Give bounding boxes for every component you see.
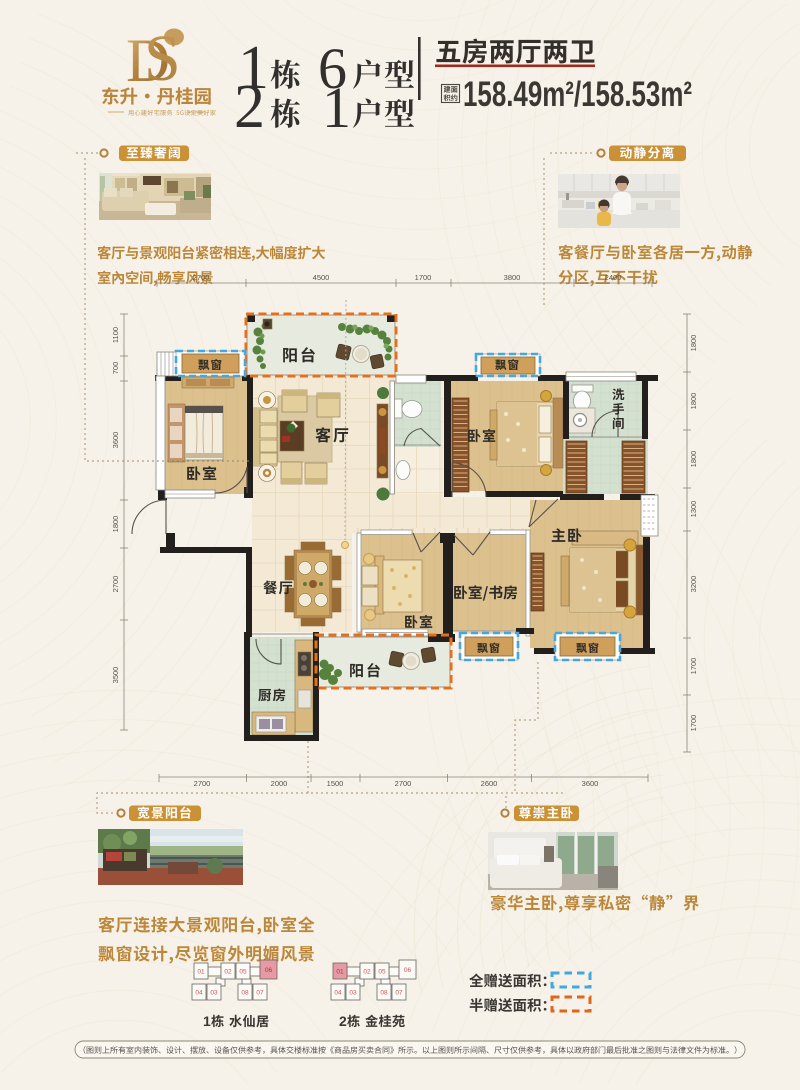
- svg-text:03: 03: [349, 989, 357, 996]
- svg-text:2000: 2000: [271, 779, 288, 788]
- svg-text:07: 07: [395, 989, 403, 996]
- svg-text:1800: 1800: [689, 451, 698, 468]
- svg-text:03: 03: [210, 989, 218, 996]
- svg-text:05: 05: [239, 968, 247, 975]
- svg-text:S: S: [144, 22, 181, 95]
- svg-text:2700: 2700: [395, 779, 412, 788]
- svg-text:1800: 1800: [111, 516, 120, 533]
- svg-text:1800: 1800: [689, 335, 698, 352]
- svg-text:2: 2: [234, 73, 265, 141]
- svg-text:2700: 2700: [193, 273, 210, 282]
- svg-text:02: 02: [224, 968, 232, 975]
- svg-text:1800: 1800: [689, 393, 698, 410]
- svg-text:08: 08: [380, 989, 388, 996]
- svg-text:4500: 4500: [313, 273, 330, 282]
- svg-text:1: 1: [203, 1013, 211, 1029]
- svg-text:3200: 3200: [689, 576, 698, 593]
- svg-text:05: 05: [378, 968, 386, 975]
- svg-text:04: 04: [195, 989, 203, 996]
- svg-text:1: 1: [322, 75, 351, 140]
- svg-text:158.49m²/158.53m²: 158.49m²/158.53m²: [463, 75, 692, 114]
- svg-text:3500: 3500: [111, 667, 120, 684]
- svg-text:2400: 2400: [605, 273, 622, 282]
- svg-text:2600: 2600: [481, 779, 498, 788]
- svg-text:1700: 1700: [689, 658, 698, 675]
- svg-text:700: 700: [111, 362, 120, 375]
- svg-text:2700: 2700: [111, 576, 120, 593]
- svg-text:1700: 1700: [415, 273, 432, 282]
- svg-text:07: 07: [256, 989, 264, 996]
- svg-text:1500: 1500: [327, 779, 344, 788]
- svg-text:06: 06: [404, 967, 412, 974]
- svg-text:1300: 1300: [689, 501, 698, 518]
- svg-text:1100: 1100: [111, 327, 120, 343]
- svg-text:04: 04: [334, 989, 342, 996]
- svg-text:3600: 3600: [582, 779, 599, 788]
- svg-text:3800: 3800: [504, 273, 521, 282]
- svg-text:3600: 3600: [111, 432, 120, 449]
- svg-text:1700: 1700: [689, 715, 698, 732]
- svg-text:06: 06: [265, 967, 273, 974]
- svg-text:01: 01: [336, 968, 344, 975]
- svg-text:2: 2: [339, 1013, 347, 1029]
- svg-text:08: 08: [241, 989, 249, 996]
- svg-text:01: 01: [197, 968, 205, 975]
- svg-text:02: 02: [363, 968, 371, 975]
- svg-text:2700: 2700: [194, 779, 211, 788]
